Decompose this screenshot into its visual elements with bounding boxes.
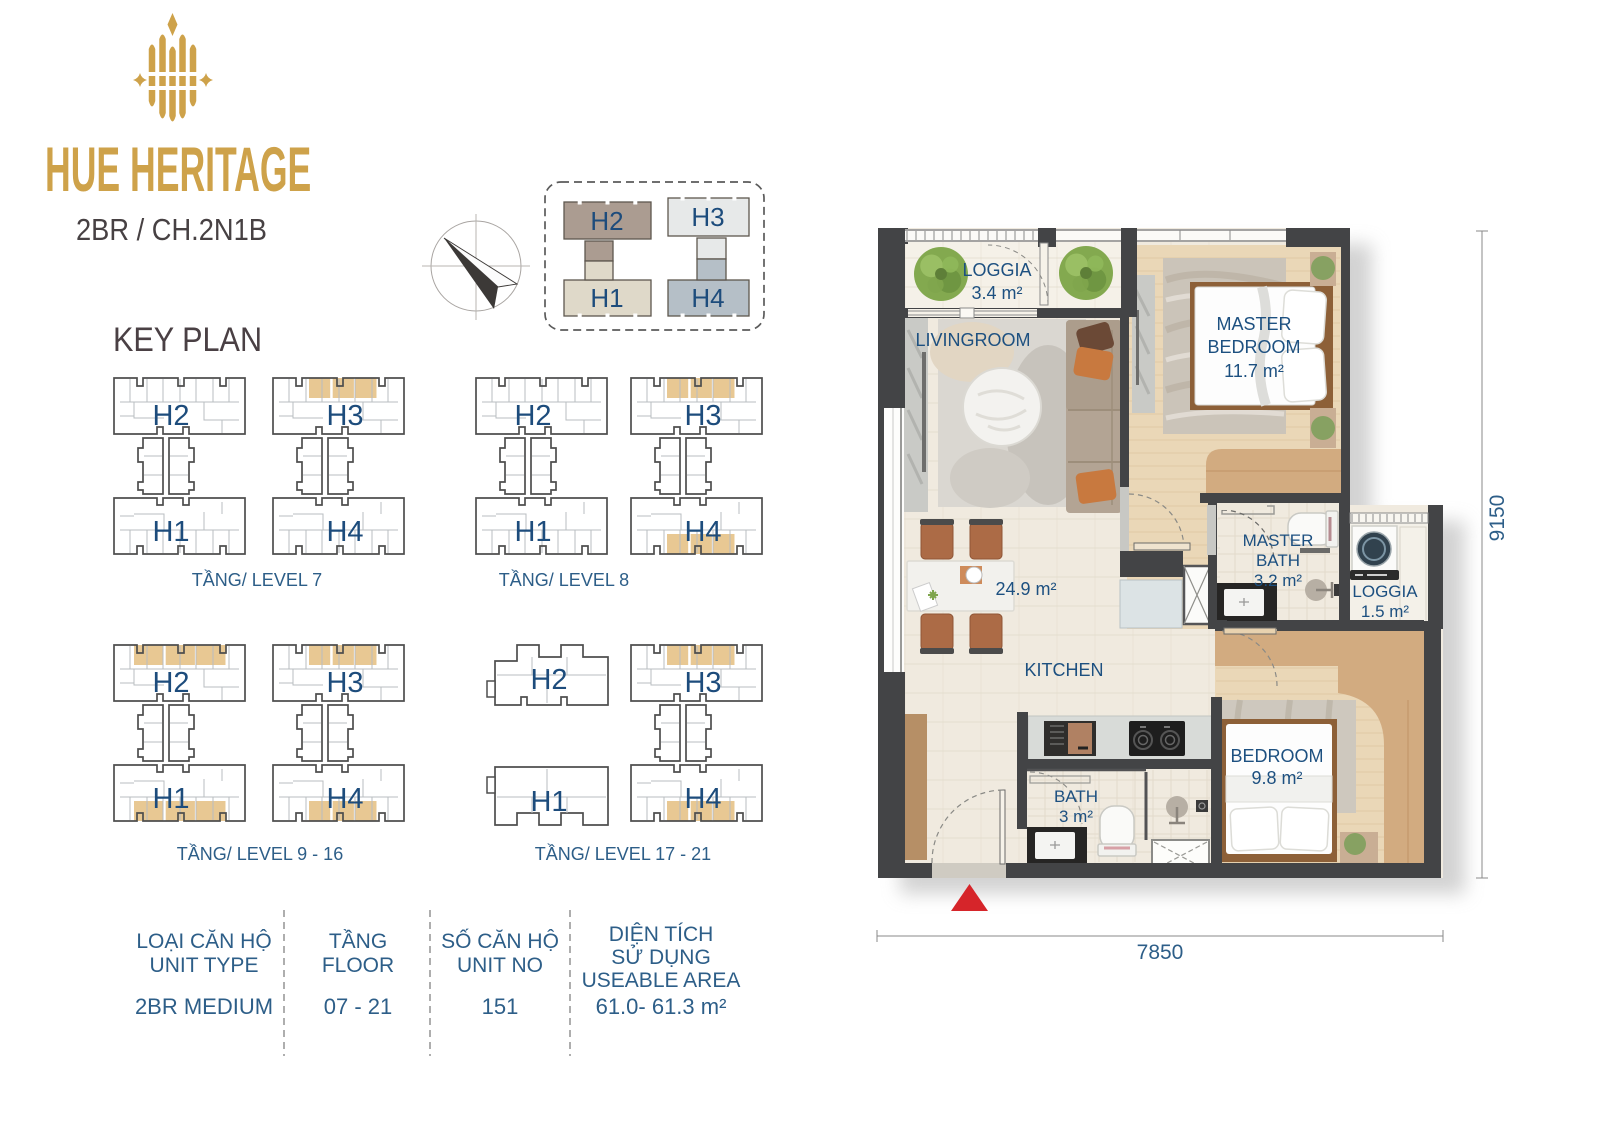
svg-text:3.4 m²: 3.4 m² xyxy=(971,283,1022,303)
svg-text:FLOOR: FLOOR xyxy=(322,954,394,977)
svg-text:H2: H2 xyxy=(530,664,567,696)
svg-text:61.0- 61.3 m²: 61.0- 61.3 m² xyxy=(596,994,727,1019)
svg-text:H3: H3 xyxy=(684,667,721,699)
svg-text:TẦNG/ LEVEL 7: TẦNG/ LEVEL 7 xyxy=(192,569,322,590)
svg-text:SỬ DỤNG: SỬ DỤNG xyxy=(611,945,711,969)
svg-text:LOGGIA: LOGGIA xyxy=(1352,582,1418,601)
svg-text:LOẠI CĂN HỘ: LOẠI CĂN HỘ xyxy=(136,930,271,953)
svg-text:TẦNG: TẦNG xyxy=(329,930,387,953)
svg-text:H3: H3 xyxy=(326,400,363,432)
svg-text:LIVINGROOM: LIVINGROOM xyxy=(915,330,1030,350)
svg-text:H3: H3 xyxy=(684,400,721,432)
svg-text:BATH: BATH xyxy=(1256,551,1300,570)
svg-text:TẦNG/ LEVEL 17 - 21: TẦNG/ LEVEL 17 - 21 xyxy=(535,843,711,864)
svg-text:H3: H3 xyxy=(691,202,724,232)
svg-text:H3: H3 xyxy=(326,667,363,699)
svg-text:3 m²: 3 m² xyxy=(1059,807,1093,826)
svg-text:H1: H1 xyxy=(590,283,623,313)
svg-text:MASTER: MASTER xyxy=(1243,531,1314,550)
svg-text:H2: H2 xyxy=(514,400,551,432)
svg-text:KEY PLAN: KEY PLAN xyxy=(113,321,262,359)
svg-text:H1: H1 xyxy=(152,783,189,815)
svg-text:H2: H2 xyxy=(590,206,623,236)
svg-text:MASTER: MASTER xyxy=(1216,314,1291,334)
svg-text:3.2 m²: 3.2 m² xyxy=(1254,571,1303,590)
svg-text:9150: 9150 xyxy=(1486,495,1509,542)
svg-text:UNIT TYPE: UNIT TYPE xyxy=(150,954,259,977)
svg-text:151: 151 xyxy=(482,994,519,1019)
svg-text:H4: H4 xyxy=(691,283,724,313)
svg-text:BATH: BATH xyxy=(1054,787,1098,806)
svg-text:H4: H4 xyxy=(684,783,721,815)
svg-text:H2: H2 xyxy=(152,400,189,432)
svg-text:07 - 21: 07 - 21 xyxy=(324,994,393,1019)
svg-text:1.5 m²: 1.5 m² xyxy=(1361,602,1410,621)
svg-text:HUE HERITAGE: HUE HERITAGE xyxy=(45,134,311,204)
svg-text:2BR MEDIUM: 2BR MEDIUM xyxy=(135,994,273,1019)
svg-text:USEABLE AREA: USEABLE AREA xyxy=(582,969,741,992)
svg-text:H4: H4 xyxy=(326,516,363,548)
svg-text:KITCHEN: KITCHEN xyxy=(1024,660,1103,680)
svg-text:H1: H1 xyxy=(514,516,551,548)
svg-text:H1: H1 xyxy=(152,516,189,548)
svg-text:DIỆN TÍCH: DIỆN TÍCH xyxy=(609,923,714,946)
svg-text:SỐ CĂN HỘ: SỐ CĂN HỘ xyxy=(441,929,559,953)
svg-text:24.9 m²: 24.9 m² xyxy=(995,579,1056,599)
svg-text:H1: H1 xyxy=(530,786,567,818)
svg-text:9.8 m²: 9.8 m² xyxy=(1251,768,1302,788)
svg-text:H4: H4 xyxy=(326,783,363,815)
svg-text:TẦNG/ LEVEL 9 - 16: TẦNG/ LEVEL 9 - 16 xyxy=(177,843,343,864)
svg-text:H2: H2 xyxy=(152,667,189,699)
svg-text:UNIT NO: UNIT NO xyxy=(457,954,543,977)
svg-text:H4: H4 xyxy=(684,516,721,548)
svg-text:7850: 7850 xyxy=(1137,941,1184,964)
svg-text:2BR / CH.2N1B: 2BR / CH.2N1B xyxy=(76,213,267,247)
svg-text:LOGGIA: LOGGIA xyxy=(962,260,1031,280)
svg-text:11.7 m²: 11.7 m² xyxy=(1224,361,1284,381)
svg-text:TẦNG/ LEVEL 8: TẦNG/ LEVEL 8 xyxy=(499,569,629,590)
svg-text:BEDROOM: BEDROOM xyxy=(1230,746,1323,766)
svg-text:BEDROOM: BEDROOM xyxy=(1207,337,1300,357)
